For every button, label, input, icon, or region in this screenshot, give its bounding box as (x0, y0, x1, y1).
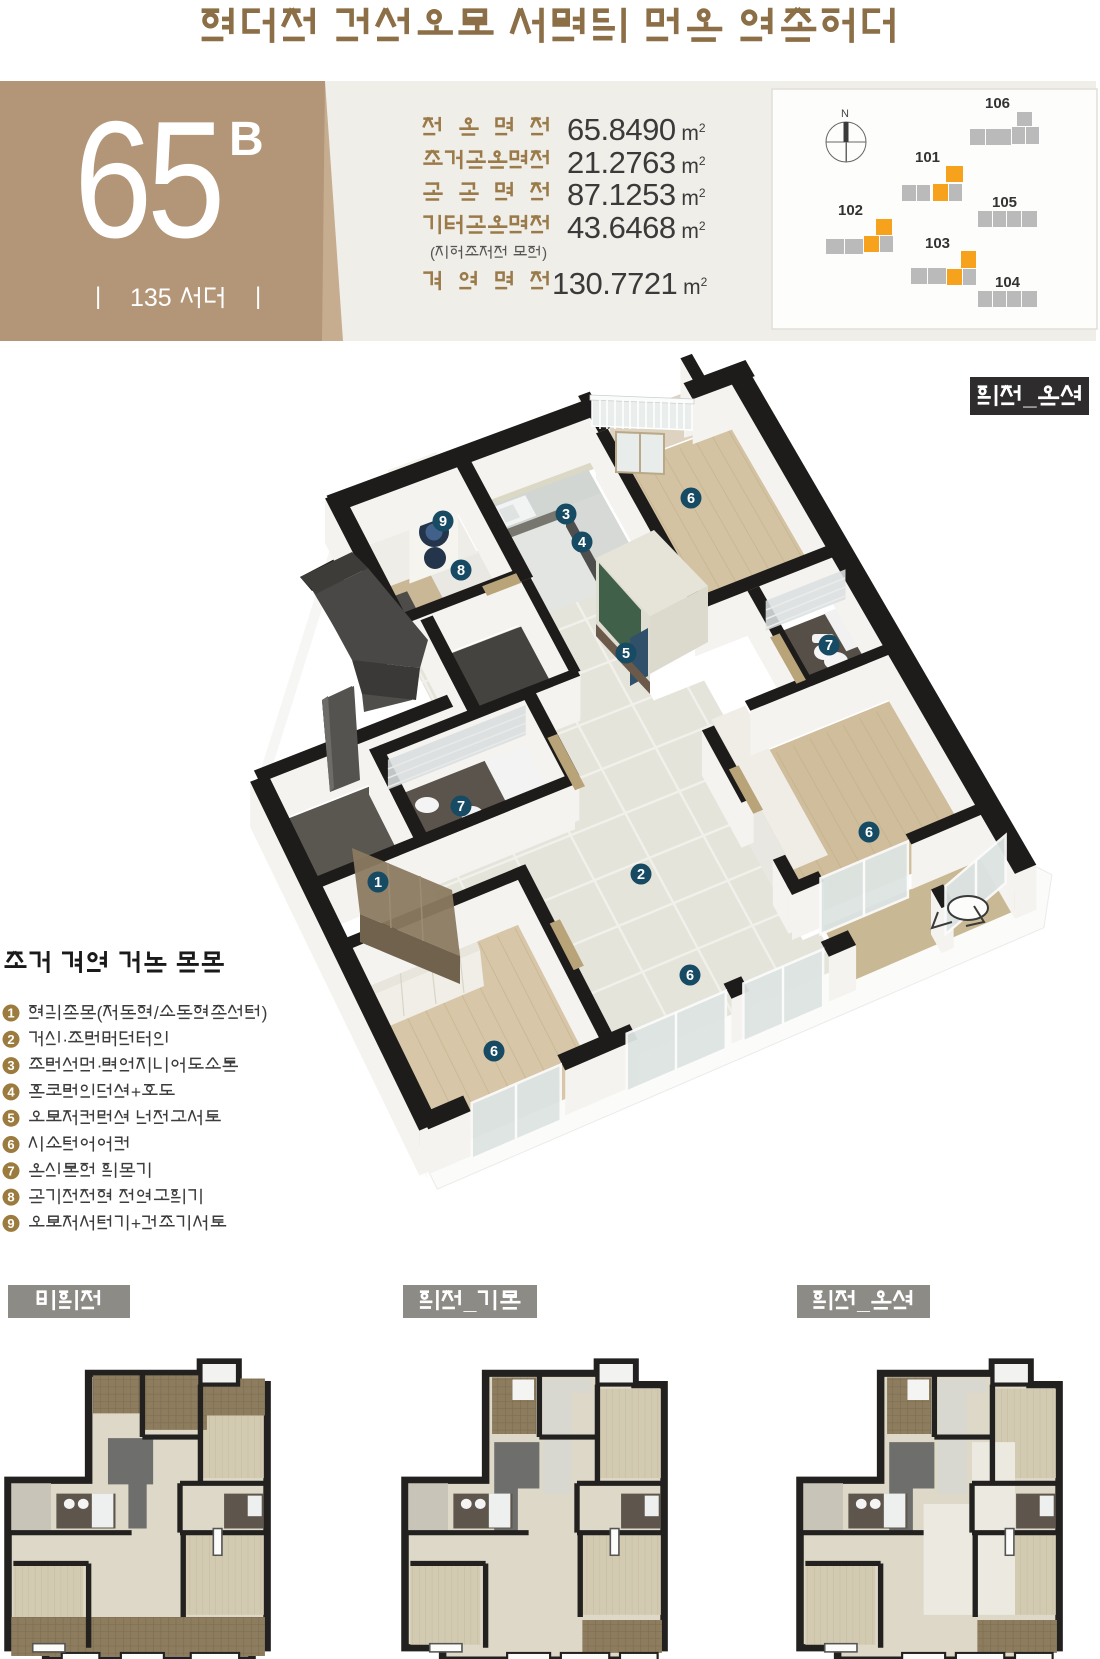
svg-text:+: + (131, 1082, 141, 1102)
svg-text:(: ( (97, 1003, 103, 1023)
svg-text:(: ( (430, 245, 435, 262)
svg-text:_: _ (1022, 384, 1037, 411)
svg-text:_: _ (856, 1288, 870, 1314)
svg-text:·: · (97, 1056, 103, 1076)
svg-text:/: / (154, 1003, 159, 1023)
svg-text:+: + (131, 1214, 141, 1234)
svg-text:_: _ (463, 1288, 477, 1314)
svg-text:·: · (62, 1029, 68, 1049)
svg-text:): ) (262, 1003, 268, 1023)
svg-text:): ) (542, 245, 547, 262)
